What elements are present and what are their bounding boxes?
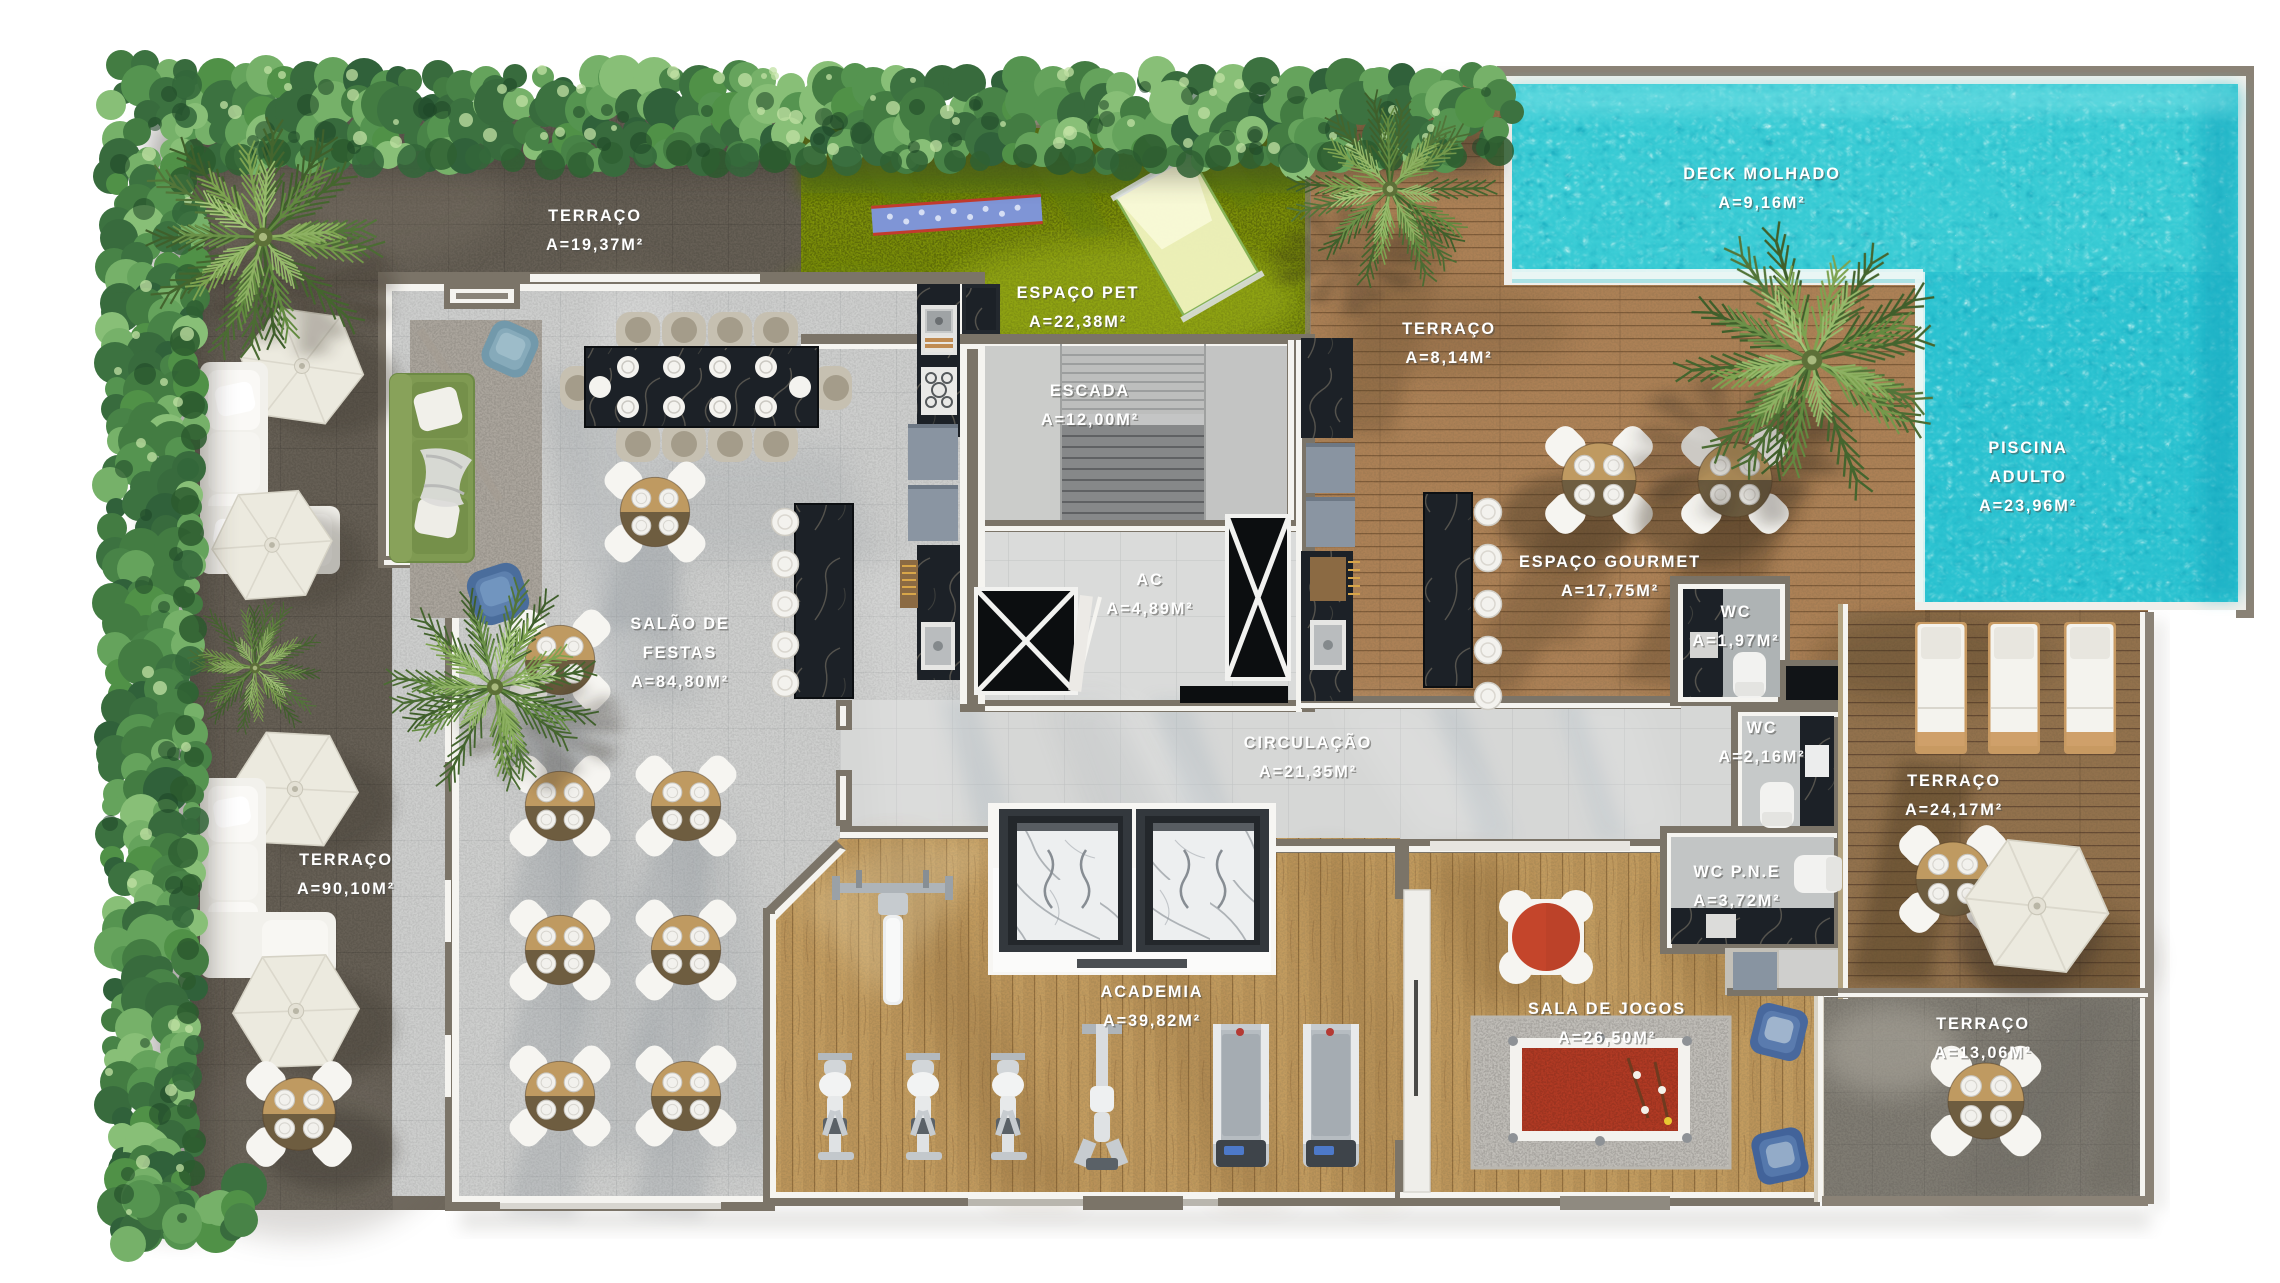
svg-text:WC P.N.E: WC P.N.E	[1693, 863, 1780, 881]
svg-text:CIRCULAÇÃO: CIRCULAÇÃO	[1244, 732, 1372, 752]
svg-text:A=22,38M²: A=22,38M²	[1029, 313, 1127, 331]
svg-text:ADULTO: ADULTO	[1989, 468, 2067, 486]
svg-text:A=12,00M²: A=12,00M²	[1041, 411, 1139, 429]
svg-text:ESPAÇO GOURMET: ESPAÇO GOURMET	[1519, 553, 1701, 571]
svg-text:A=1,97M²: A=1,97M²	[1692, 632, 1779, 650]
svg-text:TERRAÇO: TERRAÇO	[1907, 772, 2001, 790]
svg-text:A=3,72M²: A=3,72M²	[1693, 892, 1780, 910]
svg-text:AC: AC	[1136, 571, 1163, 589]
svg-text:A=39,82M²: A=39,82M²	[1103, 1012, 1201, 1030]
svg-text:SALA DE JOGOS: SALA DE JOGOS	[1528, 1000, 1686, 1018]
svg-text:ESCADA: ESCADA	[1050, 382, 1130, 400]
svg-text:FESTAS: FESTAS	[643, 644, 717, 662]
svg-text:WC: WC	[1747, 719, 1778, 737]
svg-text:A=90,10M²: A=90,10M²	[297, 880, 395, 898]
svg-text:A=26,50M²: A=26,50M²	[1558, 1029, 1656, 1047]
svg-text:PISCINA: PISCINA	[1988, 439, 2067, 457]
svg-text:A=19,37M²: A=19,37M²	[546, 236, 644, 254]
svg-text:A=13,06M²: A=13,06M²	[1934, 1044, 2032, 1062]
svg-text:A=24,17M²: A=24,17M²	[1905, 801, 2003, 819]
svg-text:A=21,35M²: A=21,35M²	[1259, 763, 1357, 781]
svg-text:A=8,14M²: A=8,14M²	[1405, 349, 1492, 367]
svg-text:TERRAÇO: TERRAÇO	[1402, 320, 1496, 338]
svg-text:WC: WC	[1721, 603, 1752, 621]
svg-text:A=17,75M²: A=17,75M²	[1561, 582, 1659, 600]
svg-text:A=4,89M²: A=4,89M²	[1106, 600, 1193, 618]
svg-text:ACADEMIA: ACADEMIA	[1101, 983, 1204, 1001]
svg-text:A=9,16M²: A=9,16M²	[1718, 194, 1805, 212]
svg-text:SALÃO DE: SALÃO DE	[630, 613, 729, 633]
svg-text:DECK MOLHADO: DECK MOLHADO	[1683, 165, 1841, 183]
svg-text:ESPAÇO PET: ESPAÇO PET	[1017, 284, 1140, 302]
svg-text:TERRAÇO: TERRAÇO	[299, 851, 393, 869]
svg-text:TERRAÇO: TERRAÇO	[548, 207, 642, 225]
svg-text:A=23,96M²: A=23,96M²	[1979, 497, 2077, 515]
svg-text:TERRAÇO: TERRAÇO	[1936, 1015, 2030, 1033]
svg-text:A=84,80M²: A=84,80M²	[631, 673, 729, 691]
svg-text:A=2,16M²: A=2,16M²	[1718, 748, 1805, 766]
